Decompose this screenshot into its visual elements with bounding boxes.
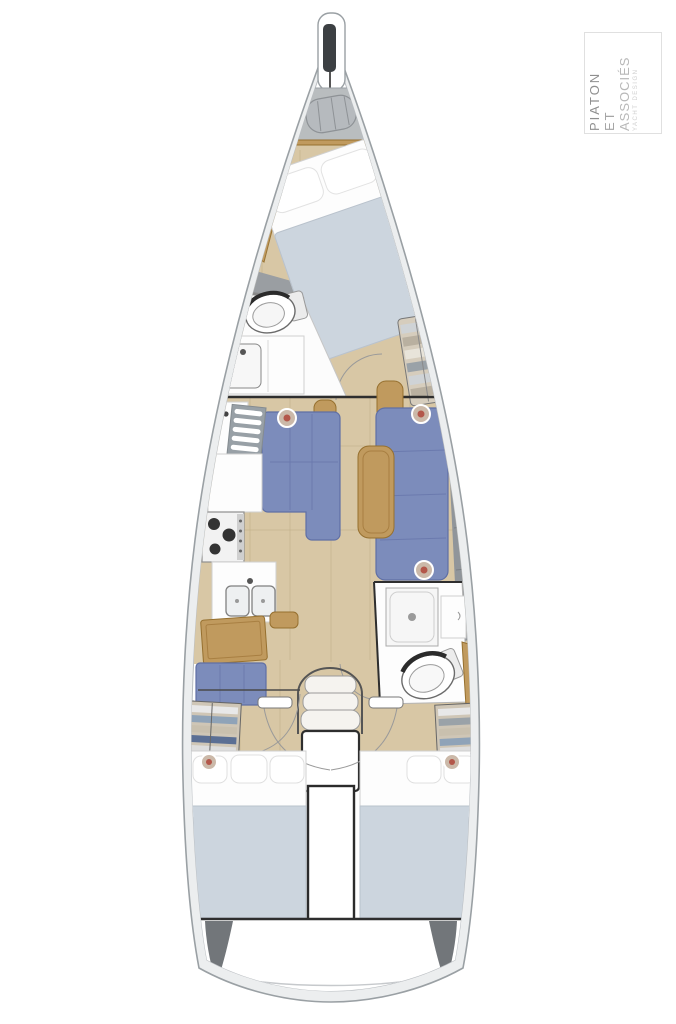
sailboat-interior-plan	[0, 0, 676, 1024]
designer-logo-text: PIATON ET ASSOCIÉS YACHT DESIGN	[587, 35, 659, 131]
designer-logo-box: PIATON ET ASSOCIÉS YACHT DESIGN	[584, 32, 662, 134]
corner-fitting	[415, 561, 433, 579]
port-berth-pillow-2	[231, 755, 267, 783]
port-door-handle	[258, 697, 292, 708]
logo-line-2: ET	[602, 35, 617, 131]
companionway-step-2	[303, 693, 358, 711]
companionway-step-3	[301, 710, 360, 730]
corner-fitting	[412, 405, 430, 423]
logo-line-3: ASSOCIÉS	[617, 35, 632, 131]
aft-head-shower	[386, 588, 438, 646]
engine-compartment	[308, 786, 354, 920]
logo-tagline: YACHT DESIGN	[632, 35, 641, 131]
anchor-roller	[323, 24, 336, 72]
starboard-door-handle	[369, 697, 403, 708]
logo-line-1: PIATON	[587, 35, 602, 131]
corner-fitting	[201, 754, 217, 770]
boat-floorplan-canvas: PIATON ET ASSOCIÉS YACHT DESIGN	[0, 0, 676, 1024]
nav-seat	[196, 663, 266, 705]
nav-desk-arm	[270, 612, 298, 628]
galley-stove	[202, 512, 244, 562]
port-berth-pillow-3	[270, 756, 304, 783]
companionway-step-1	[305, 676, 356, 694]
corner-fitting	[444, 754, 460, 770]
forward-head-faucet	[240, 349, 246, 355]
port-berth-duvet	[186, 806, 306, 918]
corner-fitting	[278, 409, 296, 427]
starboard-berth-pillow-1	[407, 756, 441, 783]
galley-counter-mid	[208, 454, 262, 512]
companionway-base	[302, 731, 359, 791]
aft-head-cabinet	[441, 596, 466, 638]
